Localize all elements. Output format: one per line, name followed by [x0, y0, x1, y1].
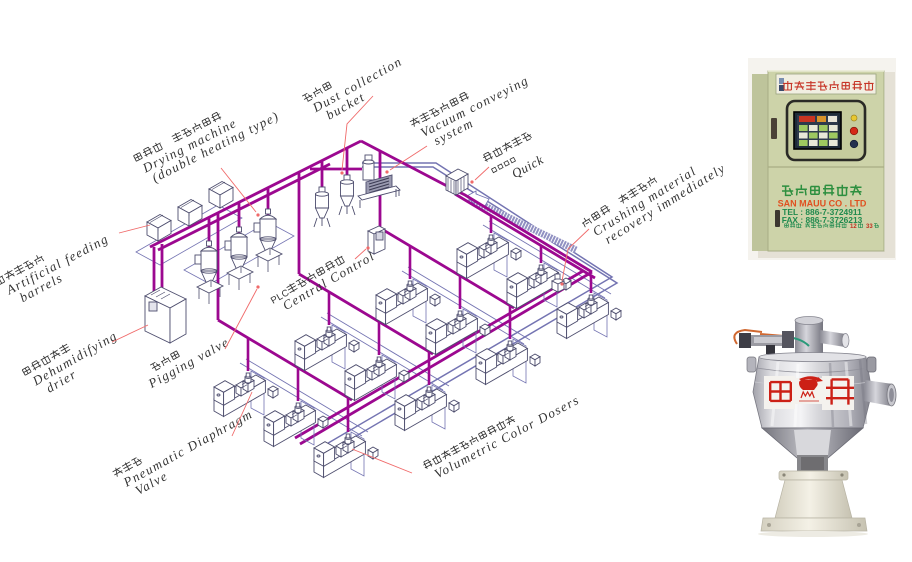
svg-text:12: 12	[850, 224, 857, 230]
svg-text:33: 33	[866, 224, 873, 230]
